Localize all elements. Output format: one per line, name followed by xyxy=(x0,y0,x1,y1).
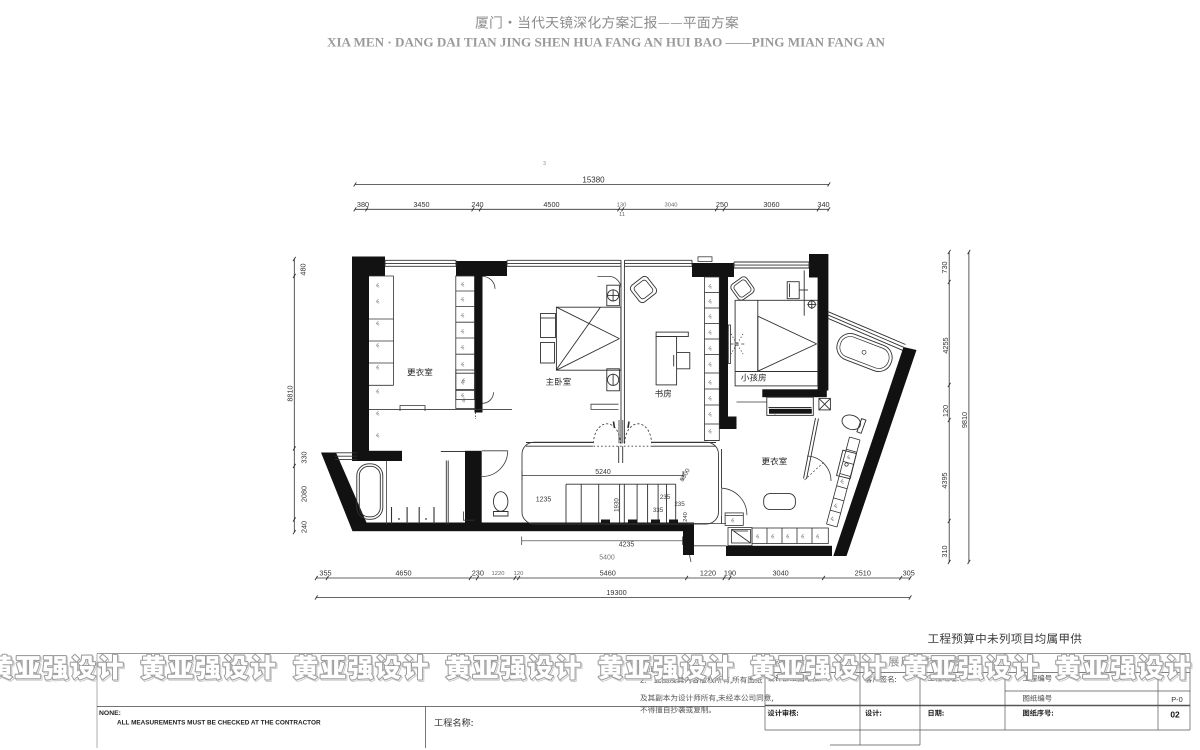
svg-text:1220: 1220 xyxy=(492,571,505,577)
svg-text:335: 335 xyxy=(653,507,664,514)
svg-text:1930: 1930 xyxy=(614,498,621,512)
svg-text:130: 130 xyxy=(617,203,627,209)
svg-text:250: 250 xyxy=(716,200,728,209)
svg-text:ALL MEASUREMENTS MUST BE C: ALL MEASUREMENTS MUST BE CHECKED AT THE … xyxy=(117,720,321,727)
svg-text:4500: 4500 xyxy=(543,200,559,209)
svg-text:240: 240 xyxy=(300,521,309,533)
svg-text:8300: 8300 xyxy=(679,467,692,483)
svg-text:15380: 15380 xyxy=(582,176,605,185)
svg-text:3060: 3060 xyxy=(763,200,779,209)
svg-text:235: 235 xyxy=(674,501,685,508)
svg-text:4395: 4395 xyxy=(940,472,949,488)
svg-text:190: 190 xyxy=(724,569,736,578)
svg-text:305: 305 xyxy=(903,569,915,578)
svg-text:1220: 1220 xyxy=(700,569,716,578)
svg-text:3040: 3040 xyxy=(665,203,678,209)
svg-text:02: 02 xyxy=(1170,710,1180,720)
svg-text:240: 240 xyxy=(683,512,689,522)
svg-text:3: 3 xyxy=(543,161,546,167)
svg-text:8810: 8810 xyxy=(286,385,295,401)
svg-text:NONE:: NONE: xyxy=(99,710,121,717)
svg-text:5240: 5240 xyxy=(595,469,611,476)
svg-text:4255: 4255 xyxy=(941,337,950,353)
svg-text:4235: 4235 xyxy=(619,541,635,548)
svg-text:340: 340 xyxy=(817,200,829,209)
svg-text:5460: 5460 xyxy=(600,569,616,578)
svg-text:240: 240 xyxy=(471,200,483,209)
svg-text:1235: 1235 xyxy=(536,497,552,504)
svg-text:3450: 3450 xyxy=(413,200,429,209)
svg-text:3040: 3040 xyxy=(772,569,788,578)
svg-text:355: 355 xyxy=(319,569,331,578)
svg-text:480: 480 xyxy=(299,263,308,275)
svg-text:120: 120 xyxy=(941,405,950,417)
svg-text:P-0: P-0 xyxy=(1171,695,1183,704)
svg-text:2510: 2510 xyxy=(855,569,871,578)
svg-text:730: 730 xyxy=(940,261,949,273)
svg-text:310: 310 xyxy=(940,545,949,557)
svg-text:120: 120 xyxy=(514,571,524,577)
svg-text:9810: 9810 xyxy=(960,412,969,428)
svg-text:4650: 4650 xyxy=(395,569,411,578)
svg-text:19300: 19300 xyxy=(606,588,626,597)
svg-text:230: 230 xyxy=(472,569,484,578)
svg-text:330: 330 xyxy=(300,451,309,463)
svg-text:380: 380 xyxy=(357,200,369,209)
svg-text:XIA MEN · DANG DAI TIAN JING: XIA MEN · DANG DAI TIAN JING SHEN HUA FA… xyxy=(327,35,886,50)
svg-text:235: 235 xyxy=(660,494,671,501)
svg-text:11: 11 xyxy=(619,212,625,218)
svg-text:5400: 5400 xyxy=(599,554,615,561)
svg-text:2080: 2080 xyxy=(300,486,309,502)
